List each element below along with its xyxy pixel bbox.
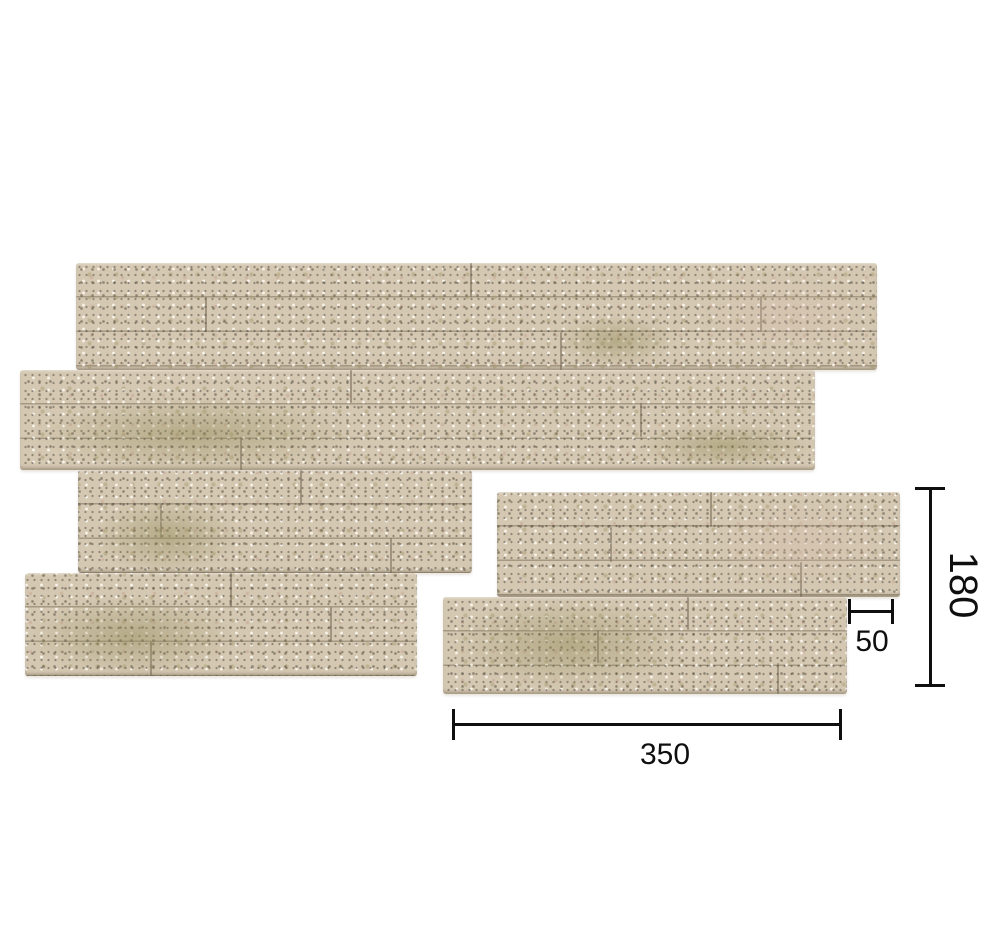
- stone-strip-band: [25, 573, 417, 676]
- stone-joint-seam: [800, 562, 802, 597]
- step-dimension-label: 50: [855, 627, 888, 657]
- height-dimension-cap-bottom: [915, 684, 945, 687]
- stone-joint-seam: [160, 504, 162, 538]
- stone-joint-seam: [760, 297, 762, 332]
- stone-joint-seam: [597, 630, 599, 663]
- stone-joint-seam: [560, 332, 562, 370]
- stone-joint-seam: [470, 263, 472, 297]
- stone-strip-band: [497, 492, 900, 597]
- width-dimension-line: [453, 723, 841, 726]
- stone-joint-seam: [230, 573, 232, 607]
- stone-joint-seam: [330, 607, 332, 642]
- height-dimension-label: 180: [943, 552, 983, 619]
- step-dimension-line: [849, 610, 894, 613]
- stone-joint-seam: [777, 663, 779, 694]
- stone-joint-seam: [240, 437, 242, 470]
- height-dimension-cap-top: [915, 487, 945, 490]
- step-dimension-cap-left: [848, 599, 851, 624]
- stone-joint-seam: [640, 403, 642, 437]
- stone-joint-seam: [710, 492, 712, 527]
- stone-joint-seam: [390, 538, 392, 573]
- stone-joint-seam: [205, 297, 207, 332]
- stone-cladding-product-photo: 180 50 350: [0, 0, 1000, 941]
- stone-strip-band: [78, 470, 472, 573]
- stone-joint-seam: [350, 370, 352, 403]
- stone-joint-seam: [610, 527, 612, 562]
- step-dimension-cap-right: [891, 599, 894, 624]
- width-dimension-label: 350: [640, 740, 690, 770]
- stone-strip-band: [76, 263, 877, 370]
- stone-joint-seam: [687, 597, 689, 630]
- width-dimension-cap-right: [839, 709, 842, 740]
- stone-strip-band: [443, 597, 847, 694]
- stone-joint-seam: [300, 470, 302, 504]
- width-dimension-cap-left: [452, 709, 455, 740]
- height-dimension-line: [929, 489, 932, 687]
- stone-strip-band: [20, 370, 815, 470]
- stone-joint-seam: [150, 642, 152, 676]
